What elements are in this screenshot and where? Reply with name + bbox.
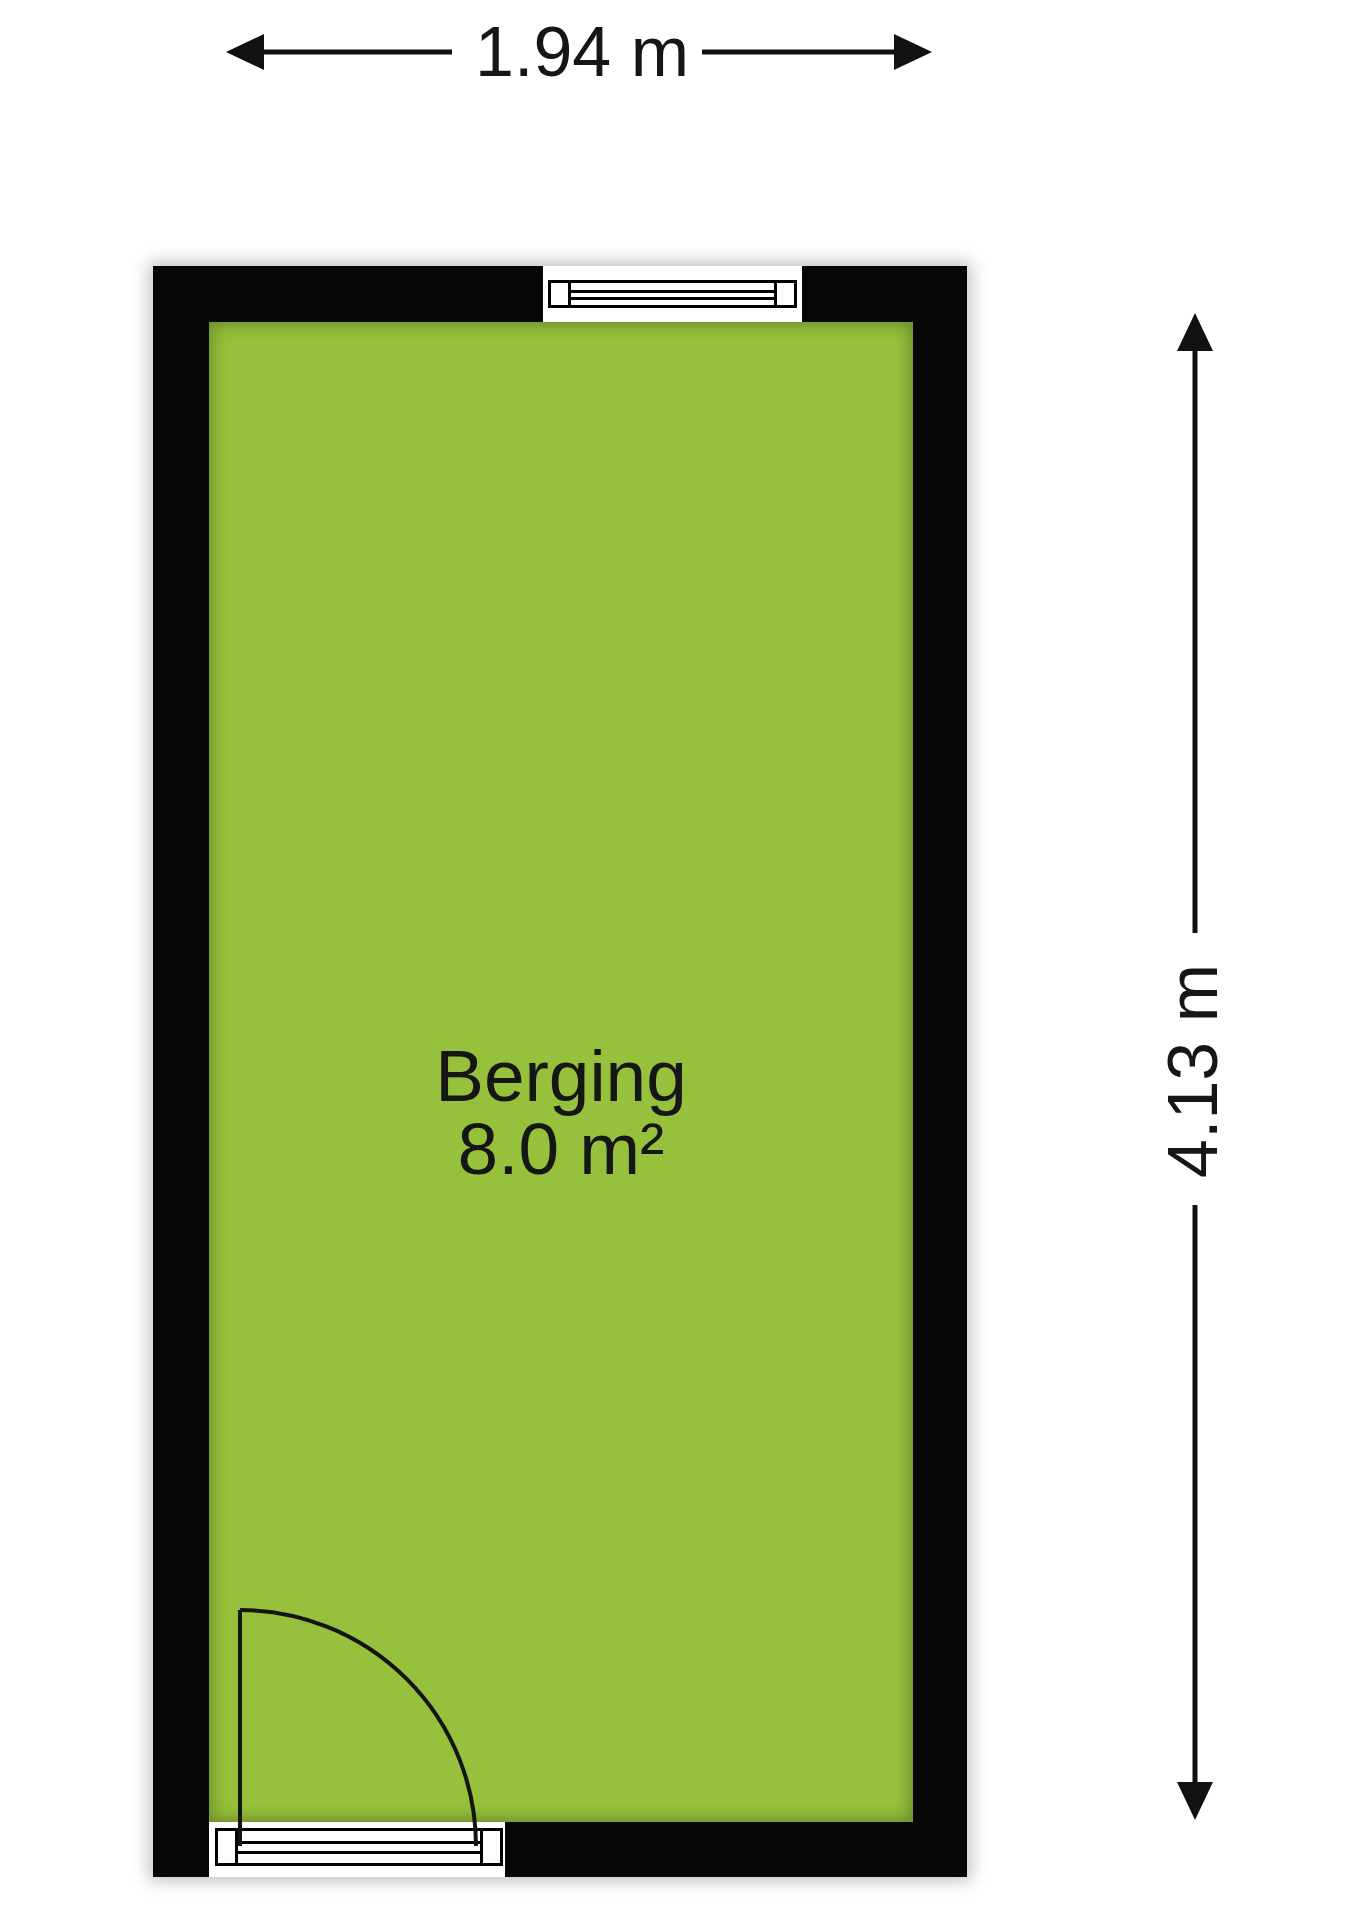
height-dimension-label: 4.13 m: [1153, 964, 1233, 1178]
window-post: [774, 283, 794, 305]
window-glass: [238, 1831, 480, 1863]
window-post: [480, 1831, 500, 1863]
bottom-window-icon: [215, 1828, 503, 1866]
room-area: 8.0 m²: [435, 1112, 687, 1185]
floorplan-canvas: 1.94 m 4.13 m Berging 8.0 m²: [0, 0, 1358, 1920]
window-post: [218, 1831, 238, 1863]
room-label: Berging 8.0 m²: [435, 1039, 687, 1185]
window-glass: [571, 283, 774, 305]
window-post: [551, 283, 571, 305]
room-name: Berging: [435, 1039, 687, 1112]
top-window-icon: [548, 280, 797, 308]
width-dimension-label: 1.94 m: [475, 12, 689, 92]
